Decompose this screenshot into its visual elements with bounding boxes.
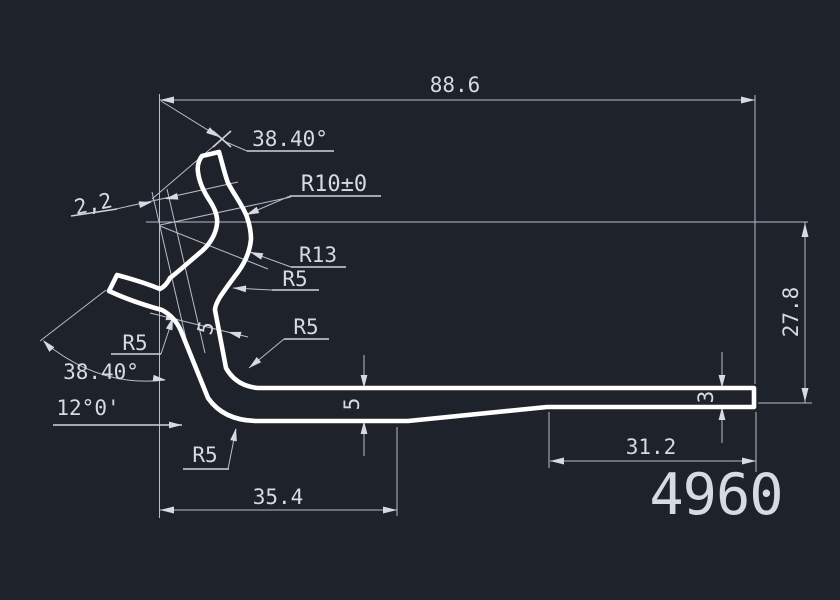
arrowhead-12deg	[169, 422, 182, 429]
leader-angle-top-2	[226, 142, 247, 151]
angle-text-leg: 12°0'	[56, 396, 119, 420]
cad-canvas: 88.6 38.40° R10±0 2,2 R13 R5 R5 R5 38.40…	[0, 0, 840, 600]
cad-drawing: 88.6 38.40° R10±0 2,2 R13 R5 R5 R5 38.40…	[0, 0, 840, 600]
arrowhead-angle-top	[206, 127, 221, 140]
construction-x-line	[152, 139, 222, 199]
dim-text-2-2: 2,2	[72, 188, 114, 219]
dim-text-35-4: 35.4	[253, 485, 304, 509]
arrowhead-35-4-left	[160, 507, 174, 514]
arrowhead-88-6-left	[160, 97, 174, 104]
arrowhead-2-2-left	[139, 199, 153, 208]
labels: 88.6 38.40° R10±0 2,2 R13 R5 R5 R5 38.40…	[56, 73, 803, 528]
dim-text-3: 3	[694, 391, 718, 404]
angle-bottom-ray	[40, 290, 106, 341]
radius-text-r13: R13	[299, 243, 337, 267]
extension-tilted-1	[152, 192, 190, 356]
arrowheads	[41, 97, 809, 514]
arrowhead-27-8-top	[802, 223, 809, 237]
radius-text-r5-low: R5	[293, 315, 318, 339]
angle-ray-upper	[160, 197, 291, 225]
part-number: 4960	[649, 462, 782, 528]
arrowhead-r5-bottom	[230, 427, 239, 441]
radius-text-r5-bottom: R5	[192, 443, 217, 467]
dim-text-31-2: 31.2	[626, 435, 677, 459]
radius-text-r5-mid: R5	[282, 267, 307, 291]
arrowhead-r5-mid	[233, 285, 246, 293]
arrowhead-27-8-bottom	[802, 388, 809, 402]
arrowhead-angle-bottom-1	[41, 338, 55, 352]
profile-outline	[109, 152, 754, 421]
arrowhead-leg5-right	[227, 329, 241, 339]
radius-text-r10: R10±0	[301, 172, 367, 197]
angle-text-bottom: 38.40°	[63, 360, 139, 384]
x-vertex-marker	[213, 131, 231, 147]
dim-text-88-6: 88.6	[430, 73, 481, 97]
arrowhead-31-2-left	[550, 458, 564, 465]
dim-text-5: 5	[340, 398, 364, 411]
dim-text-27-8: 27.8	[779, 287, 803, 338]
radius-text-r5-left: R5	[122, 331, 147, 355]
arrowhead-35-4-right	[383, 507, 397, 514]
angle-text-top: 38.40°	[252, 127, 328, 151]
arrowhead-88-6-right	[741, 97, 755, 104]
